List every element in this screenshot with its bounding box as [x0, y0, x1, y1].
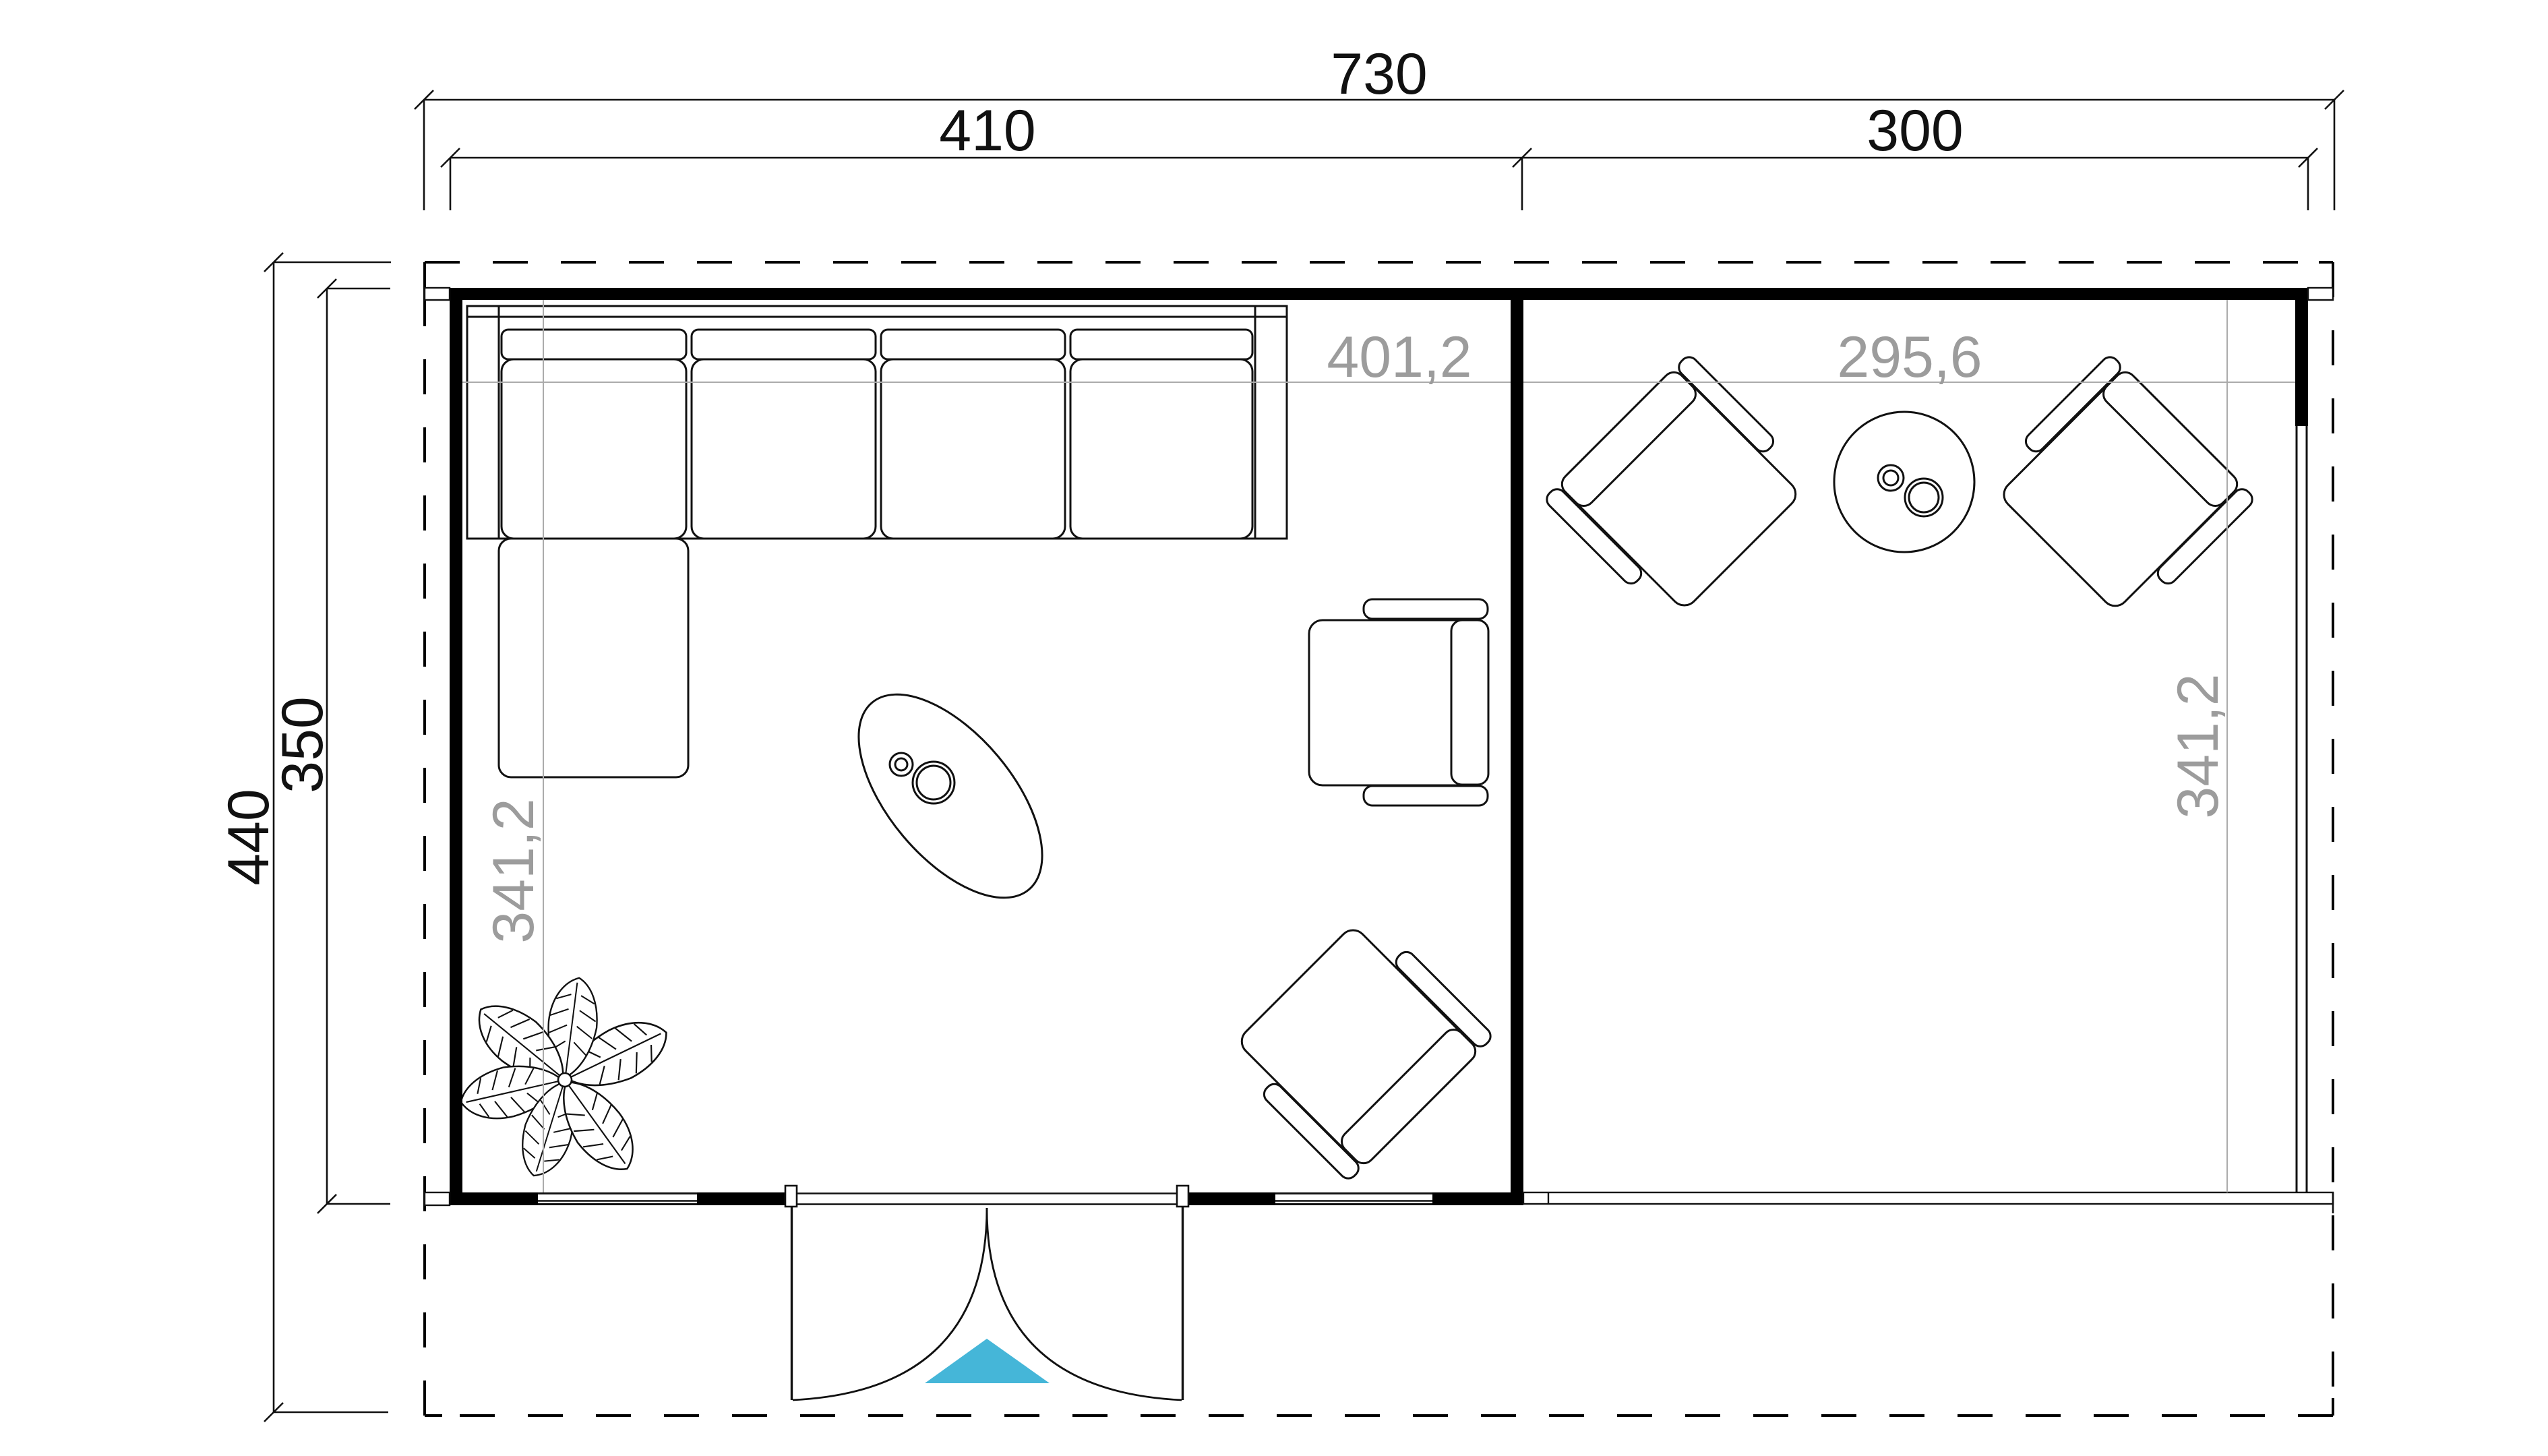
svg-text:730: 730 — [1331, 42, 1428, 107]
svg-text:440: 440 — [216, 789, 281, 886]
svg-text:410: 410 — [939, 98, 1036, 163]
svg-text:295,6: 295,6 — [1837, 325, 1982, 390]
svg-text:341,2: 341,2 — [481, 798, 546, 943]
svg-text:300: 300 — [1867, 98, 1964, 163]
svg-text:350: 350 — [270, 696, 335, 793]
svg-text:401,2: 401,2 — [1327, 325, 1472, 390]
svg-text:341,2: 341,2 — [2166, 673, 2231, 818]
